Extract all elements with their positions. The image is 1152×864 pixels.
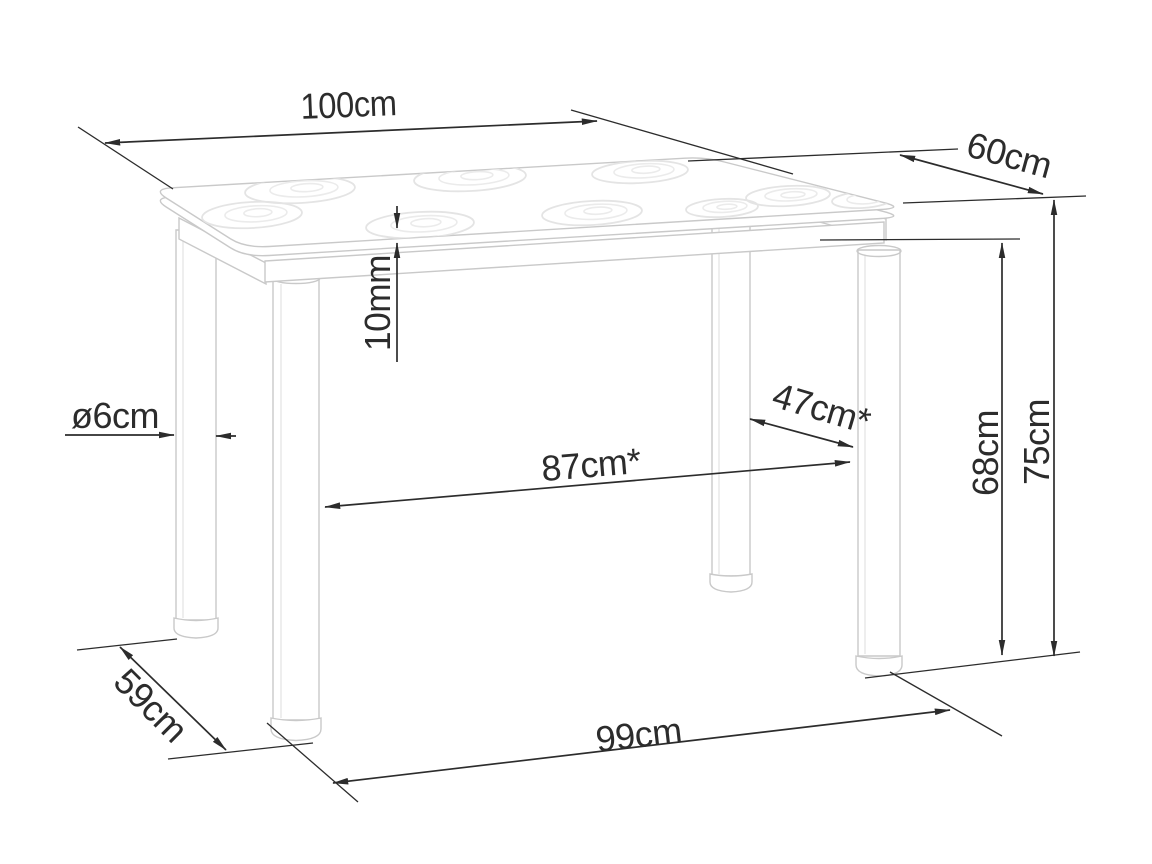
dim-label-top-depth: 60cm (962, 124, 1056, 186)
extension-line (78, 127, 173, 189)
leg-foot (174, 618, 218, 638)
dim-label-leg-height: 68cm (965, 410, 1006, 496)
dim-label-floor-depth: 59cm (106, 660, 196, 750)
extension-line (890, 672, 1002, 736)
leg-foot (271, 718, 321, 741)
dim-label-leg-spacing-length: 87cm* (540, 440, 643, 489)
dim-label-total-height: 75cm (1016, 399, 1057, 485)
dim-label-leg-diameter: ø6cm (71, 395, 159, 436)
extension-line (168, 743, 313, 759)
dim-label-glass-thickness: 10mm (357, 255, 398, 351)
table-leg-front-right (856, 246, 902, 677)
table-leg-back-left (174, 230, 218, 638)
extension-line (77, 639, 177, 650)
table-leg-back-right (710, 196, 752, 592)
dimension-drawing-page: 100cm 60cm 10mm ø6cm 87cm* 47cm* 68cm 75… (0, 0, 1152, 864)
extension-line (903, 196, 1086, 203)
table-leg-front-left (271, 273, 321, 741)
table-illustration (160, 158, 902, 741)
leg-foot (710, 574, 752, 592)
leg-foot (856, 656, 902, 676)
table-dimension-diagram: 100cm 60cm 10mm ø6cm 87cm* 47cm* 68cm 75… (0, 0, 1152, 864)
dim-label-top-length: 100cm (300, 82, 398, 127)
dim-label-floor-length: 99cm (594, 709, 684, 759)
